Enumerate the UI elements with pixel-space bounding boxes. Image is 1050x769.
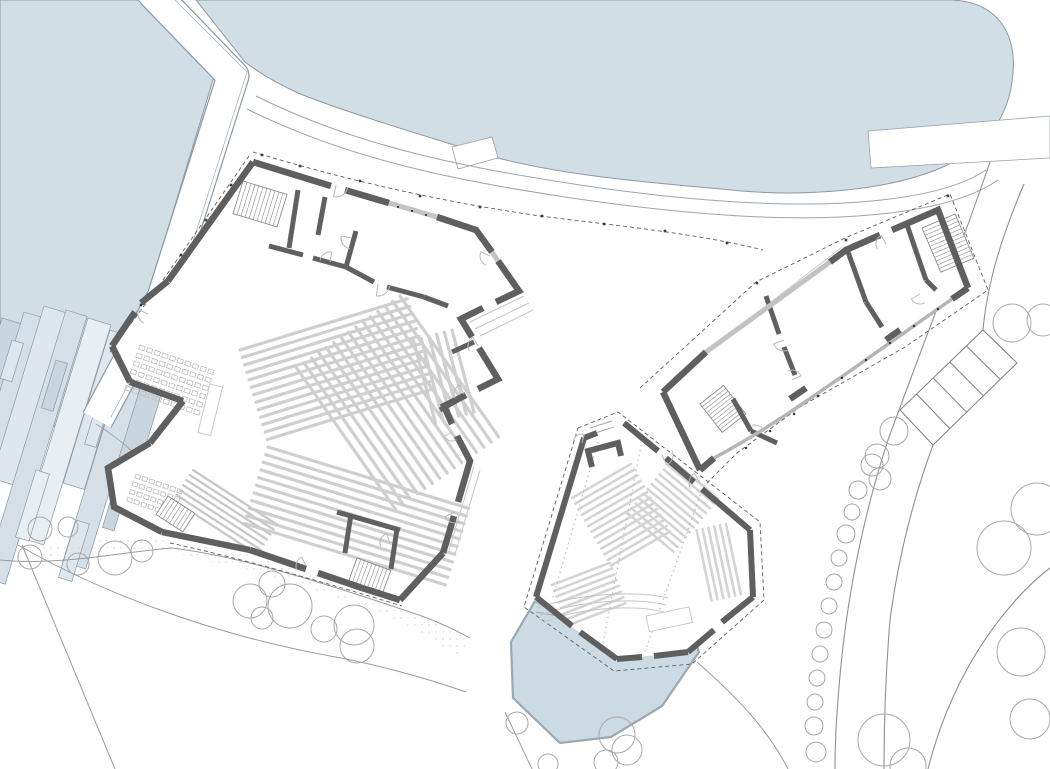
site-plan-drawing <box>0 0 1050 769</box>
door-swing-icon <box>573 432 584 443</box>
site-plan-page <box>0 0 1050 769</box>
parking-area <box>900 330 1017 445</box>
